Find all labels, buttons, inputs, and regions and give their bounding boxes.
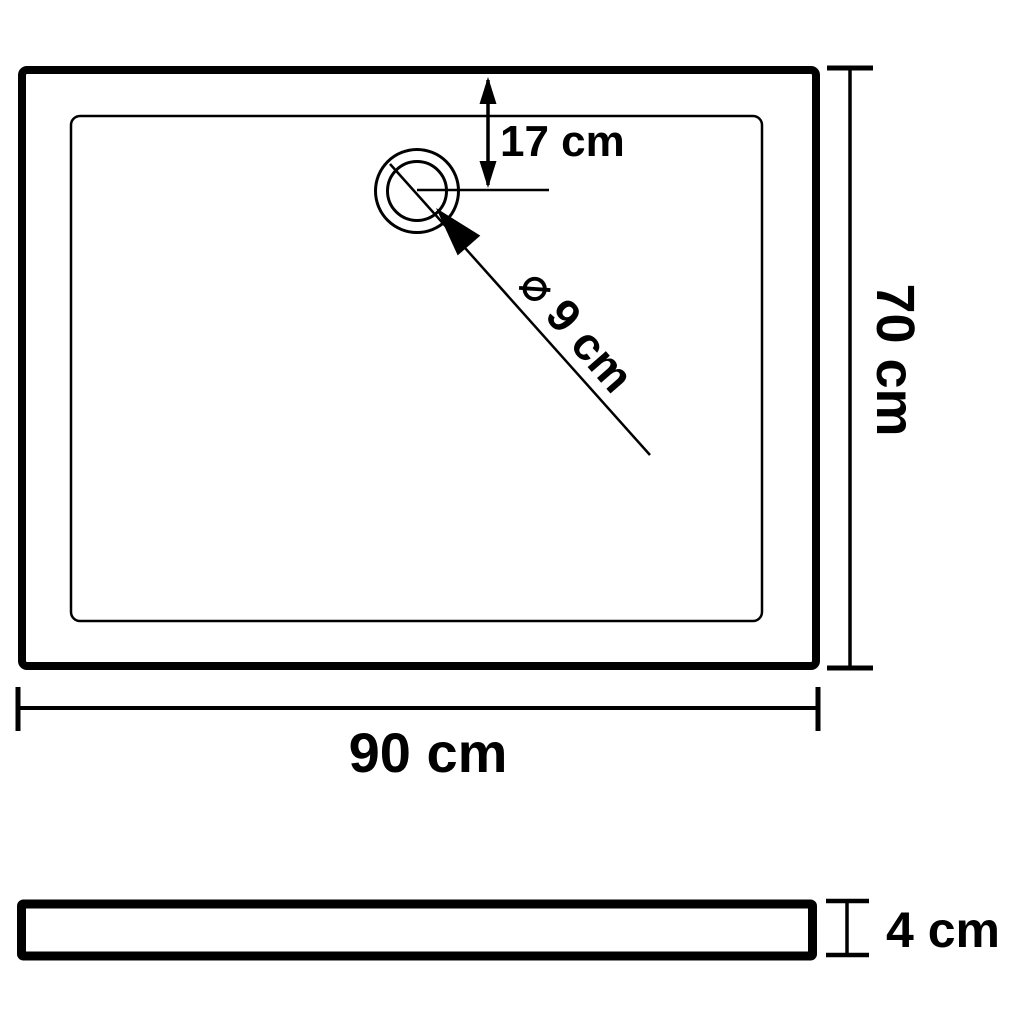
dimension-drawing: 17 cm ⌀ 9 cm 70 cm 90 cm <box>0 0 1024 1024</box>
arrowhead-down-icon <box>480 161 497 188</box>
drain-diameter-label: ⌀ 9 cm <box>509 258 644 402</box>
dimension-90cm-label: 90 cm <box>349 721 508 784</box>
drain-diameter-leader-line <box>390 164 650 455</box>
side-view: 4 cm <box>22 901 1000 958</box>
top-view: 17 cm ⌀ 9 cm 70 cm 90 cm <box>18 68 925 784</box>
shower-tray-diagram: 17 cm ⌀ 9 cm 70 cm 90 cm <box>0 0 1024 1024</box>
dimension-70cm: 70 cm <box>827 68 925 668</box>
tray-inner-edge <box>71 116 762 621</box>
dimension-70cm-label: 70 cm <box>865 283 925 436</box>
dimension-drain-diameter: ⌀ 9 cm <box>390 164 650 455</box>
arrowhead-up-icon <box>480 77 497 104</box>
dimension-4cm-label: 4 cm <box>886 902 1000 958</box>
dimension-17cm: 17 cm <box>480 77 625 188</box>
arrowhead-diagonal-icon <box>436 208 480 255</box>
tray-outer-outline <box>22 70 816 666</box>
tray-profile-outline <box>22 904 813 956</box>
dimension-4cm: 4 cm <box>826 901 1000 958</box>
dimension-90cm: 90 cm <box>18 687 818 784</box>
dimension-17cm-label: 17 cm <box>500 117 625 166</box>
